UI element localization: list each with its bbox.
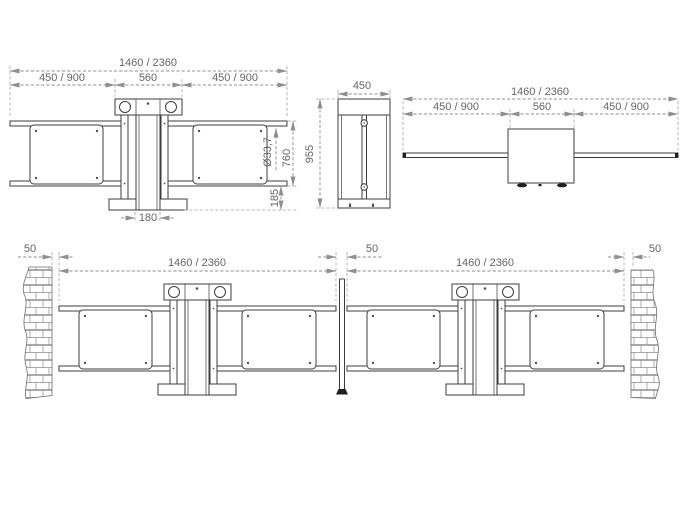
gate-dimension-drawing: 1460 / 2360 450 / 900 560 450 / 900 Ø33,… bbox=[0, 0, 686, 515]
front-dim-tube-diameter: Ø33,7 bbox=[262, 137, 274, 167]
install-dim-gate2: 1460 / 2360 bbox=[456, 257, 514, 269]
plan-dim-overall: 1460 / 2360 bbox=[511, 86, 569, 98]
install-dim-center-gap: 50 bbox=[366, 243, 378, 255]
technical-drawing-page: 1460 / 2360 450 / 900 560 450 / 900 Ø33,… bbox=[0, 0, 686, 515]
side-dim-height: 955 bbox=[304, 145, 316, 163]
front-dim-base-width: 180 bbox=[139, 212, 157, 224]
front-dim-left: 450 / 900 bbox=[39, 72, 85, 84]
plan-arm-right bbox=[574, 153, 678, 158]
background bbox=[0, 0, 686, 515]
plan-dim-center: 560 bbox=[533, 101, 551, 113]
wall-left bbox=[23, 267, 52, 399]
plan-dim-right: 450 / 900 bbox=[603, 101, 649, 113]
front-dim-ground-clearance: 185 bbox=[269, 189, 281, 207]
plan-housing bbox=[508, 129, 574, 183]
front-dim-rail-height: 760 bbox=[281, 149, 293, 167]
install-dim-wall-gap-right: 50 bbox=[649, 243, 661, 255]
install-dim-gate1: 1460 / 2360 bbox=[168, 257, 226, 269]
plan-arm-left bbox=[403, 153, 508, 158]
side-dim-width: 450 bbox=[353, 80, 371, 92]
front-dim-overall: 1460 / 2360 bbox=[119, 57, 177, 69]
front-dim-center: 560 bbox=[139, 72, 157, 84]
install-dim-wall-gap-left: 50 bbox=[24, 243, 36, 255]
front-dim-right: 450 / 900 bbox=[212, 72, 258, 84]
plan-dim-left: 450 / 900 bbox=[433, 101, 479, 113]
